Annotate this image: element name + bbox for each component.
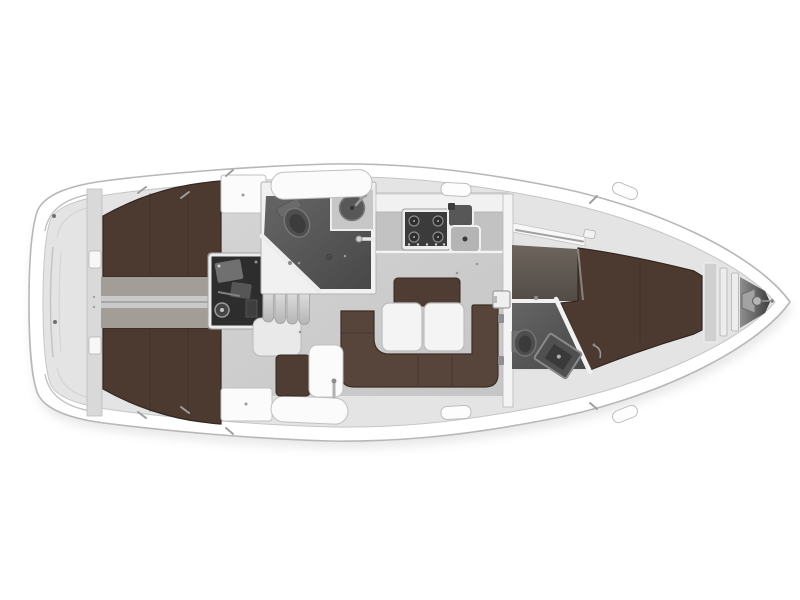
- galley-stove: [402, 209, 450, 250]
- door-hinge: [498, 314, 504, 323]
- door-handle: [534, 296, 538, 300]
- door-hinge: [498, 356, 504, 365]
- nav-seat: [276, 355, 310, 396]
- engine-compartment: [208, 253, 266, 329]
- berth-head-frame: [704, 263, 717, 342]
- bulkhead-latch: [89, 251, 101, 268]
- side-table: [309, 345, 343, 397]
- deck-pod-starboard: [270, 395, 348, 424]
- galley: [376, 194, 506, 253]
- deck-pod-port: [271, 169, 373, 200]
- transom-fitting: [53, 320, 57, 324]
- bow-partition: [732, 273, 739, 331]
- stern-bulkhead: [87, 189, 102, 416]
- mast-step: [493, 291, 510, 308]
- yacht-floor-plan: [0, 0, 800, 600]
- forward-head-toilet: [512, 330, 536, 356]
- forward-cabin-floor: [512, 245, 582, 301]
- aft-cabin-passage: [101, 277, 221, 328]
- saloon-backrest: [394, 278, 460, 306]
- bulkhead-latch: [89, 337, 101, 354]
- port-aft-cabinet: [221, 175, 266, 213]
- starboard-aft-cabinet: [221, 388, 272, 421]
- bow-partition: [720, 268, 727, 336]
- aft-head: [261, 182, 376, 294]
- transom-fitting: [52, 214, 56, 218]
- door-handle: [288, 261, 292, 265]
- floor-plan-svg: [0, 0, 800, 600]
